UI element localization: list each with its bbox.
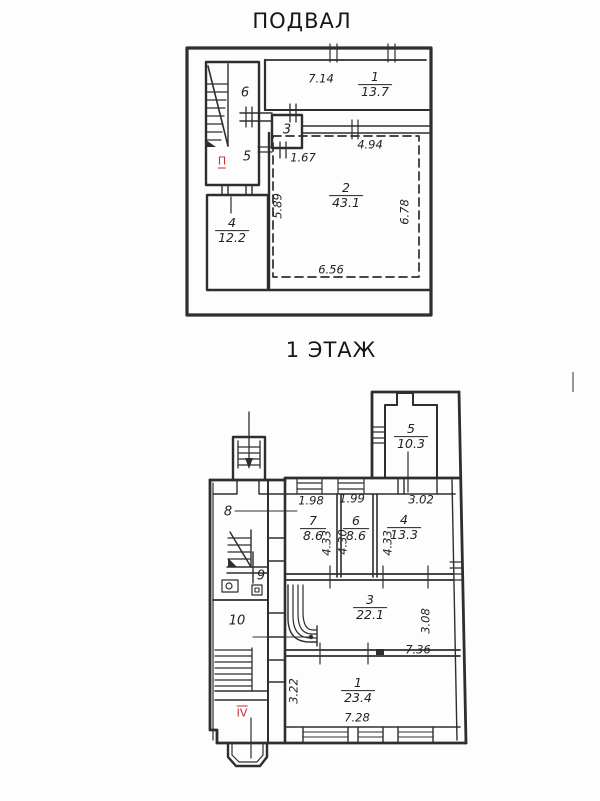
scanned-floorplan-page: ПОДВАЛ 6 5 3 4 12.2 1 13.7 2 43.1 7.14 1… <box>0 0 600 801</box>
entrance-door-jambs <box>213 480 285 494</box>
room-number: 4 <box>228 216 236 230</box>
entrance-arrow-head <box>245 458 253 469</box>
room3-bottom-ticks <box>280 142 286 158</box>
room-area: 22.1 <box>353 608 387 623</box>
wall-connectors <box>222 185 252 195</box>
room-number: 4 <box>400 513 408 527</box>
stairs-bottom-steps <box>215 650 252 686</box>
room-number: 1 <box>371 70 379 84</box>
dim-room1-bottom: 7.28 <box>344 712 370 724</box>
dim-room6-depth: 4.30 <box>337 529 349 555</box>
room5-window <box>372 427 385 443</box>
floor1-title: 1 ЭТАЖ <box>286 338 377 362</box>
room-area: 23.4 <box>341 691 375 706</box>
fixture-toilet <box>222 580 238 592</box>
room1-door-ticks <box>320 643 368 664</box>
dim-room2-bottom: 6.56 <box>318 264 344 276</box>
stairs-stringer <box>208 66 228 146</box>
dim-room3-bottom: 7.36 <box>405 644 431 656</box>
basement-outer-wall <box>187 48 431 315</box>
stairs-mid-stringer <box>230 532 251 567</box>
dim-room1-left: 3.22 <box>288 678 300 704</box>
right-inner-wall <box>452 480 457 740</box>
room-number: 6 <box>352 514 360 528</box>
door-passage <box>240 113 272 121</box>
corridor-connectors <box>268 538 285 682</box>
dim-room2-right: 6.78 <box>399 199 411 225</box>
south-window-glazing <box>303 732 433 737</box>
dim-room4-width: 3.02 <box>408 494 434 506</box>
dim-room3-right: 3.08 <box>420 608 432 634</box>
stairs-base <box>206 140 216 147</box>
dim-room2-left: 5.89 <box>272 193 284 219</box>
basement-room4-label: 4 12.2 <box>215 216 249 246</box>
basement-room2-label: 2 43.1 <box>329 181 363 211</box>
room-area: 10.3 <box>394 437 428 452</box>
band-door-ticks <box>330 566 428 588</box>
window-room7 <box>297 478 322 494</box>
dim-room7-depth: 4.33 <box>321 530 333 556</box>
basement-room1-label: 1 13.7 <box>358 70 392 100</box>
room-number: 3 <box>366 593 374 607</box>
floor1-room10-number: 10 <box>229 615 246 628</box>
entrance-bay-inner <box>232 743 263 762</box>
dim-room6-width: 1.99 <box>339 493 365 505</box>
room-area: 13.7 <box>358 85 392 100</box>
floor1-room1-label: 1 23.4 <box>341 676 375 706</box>
floor1-room9-number: 9 <box>257 570 265 583</box>
right-wall-window <box>450 562 462 580</box>
fixture-duct <box>252 585 262 595</box>
room-number: 7 <box>309 514 317 528</box>
basement-room3-number: 3 <box>283 124 291 137</box>
room3-room1-wall <box>285 650 460 656</box>
room2-top-wall <box>302 126 429 133</box>
stairs-landing-wall <box>215 691 268 700</box>
room-area: 12.2 <box>215 231 249 246</box>
room3-top-ticks <box>290 104 296 122</box>
floor1-room5-label: 5 10.3 <box>394 422 428 452</box>
door-ticks <box>246 107 252 127</box>
dim-room1-width: 7.14 <box>308 73 334 85</box>
room-number: 1 <box>354 676 362 690</box>
dim-door: 1.67 <box>290 152 316 164</box>
basement-room5-number: 5 <box>243 151 251 164</box>
room-number: 5 <box>407 422 415 436</box>
wall-fill-mark <box>376 649 384 655</box>
floor1-room3-label: 3 22.1 <box>353 593 387 623</box>
floor1-room8-number: 8 <box>224 506 232 519</box>
dim-room4-depth: 4.33 <box>382 530 394 556</box>
dim-room2-top: 4.94 <box>357 139 383 151</box>
basement-room6-number: 6 <box>241 87 249 100</box>
floor1-red-mark: IV <box>237 706 248 719</box>
room-area: 43.1 <box>329 196 363 211</box>
south-window-jambs <box>303 727 433 743</box>
room-number: 2 <box>342 181 350 195</box>
dim-room7-width: 1.98 <box>298 495 324 507</box>
basement-title: ПОДВАЛ <box>252 9 351 33</box>
basement-red-mark: П <box>218 156 226 169</box>
